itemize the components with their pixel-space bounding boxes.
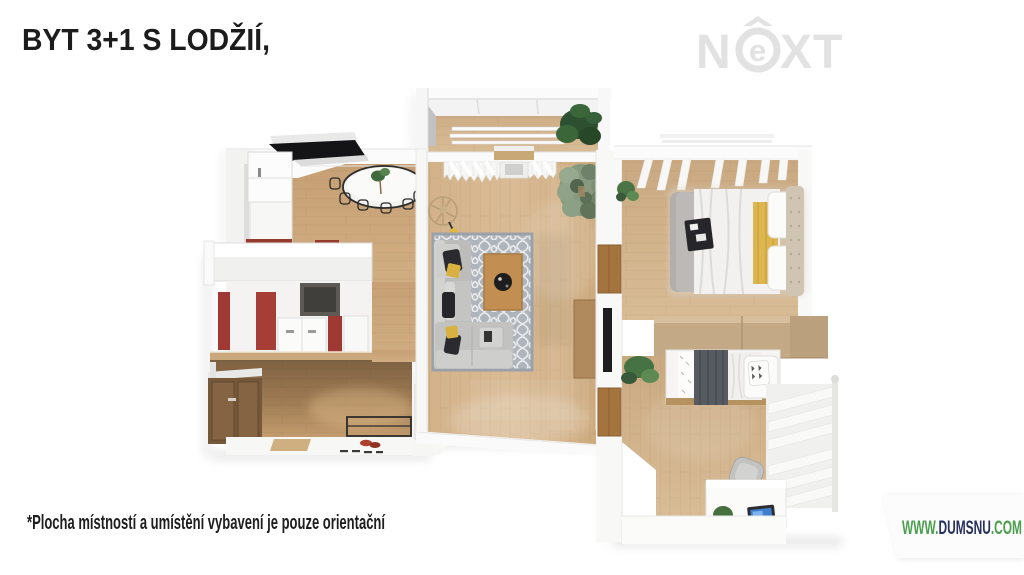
svg-text:BYT 3+1 S LODŽIÍ,: BYT 3+1 S LODŽIÍ, [22, 21, 270, 57]
svg-text:T: T [813, 26, 842, 79]
svg-text:*Plocha místností a umístění v: *Plocha místností a umístění vybavení je… [27, 512, 386, 534]
svg-text:WWW.DUMSNU.COM: WWW.DUMSNU.COM [902, 518, 1022, 539]
svg-text:e: e [749, 33, 766, 68]
svg-text:X: X [780, 26, 812, 79]
svg-text:N: N [696, 26, 731, 79]
